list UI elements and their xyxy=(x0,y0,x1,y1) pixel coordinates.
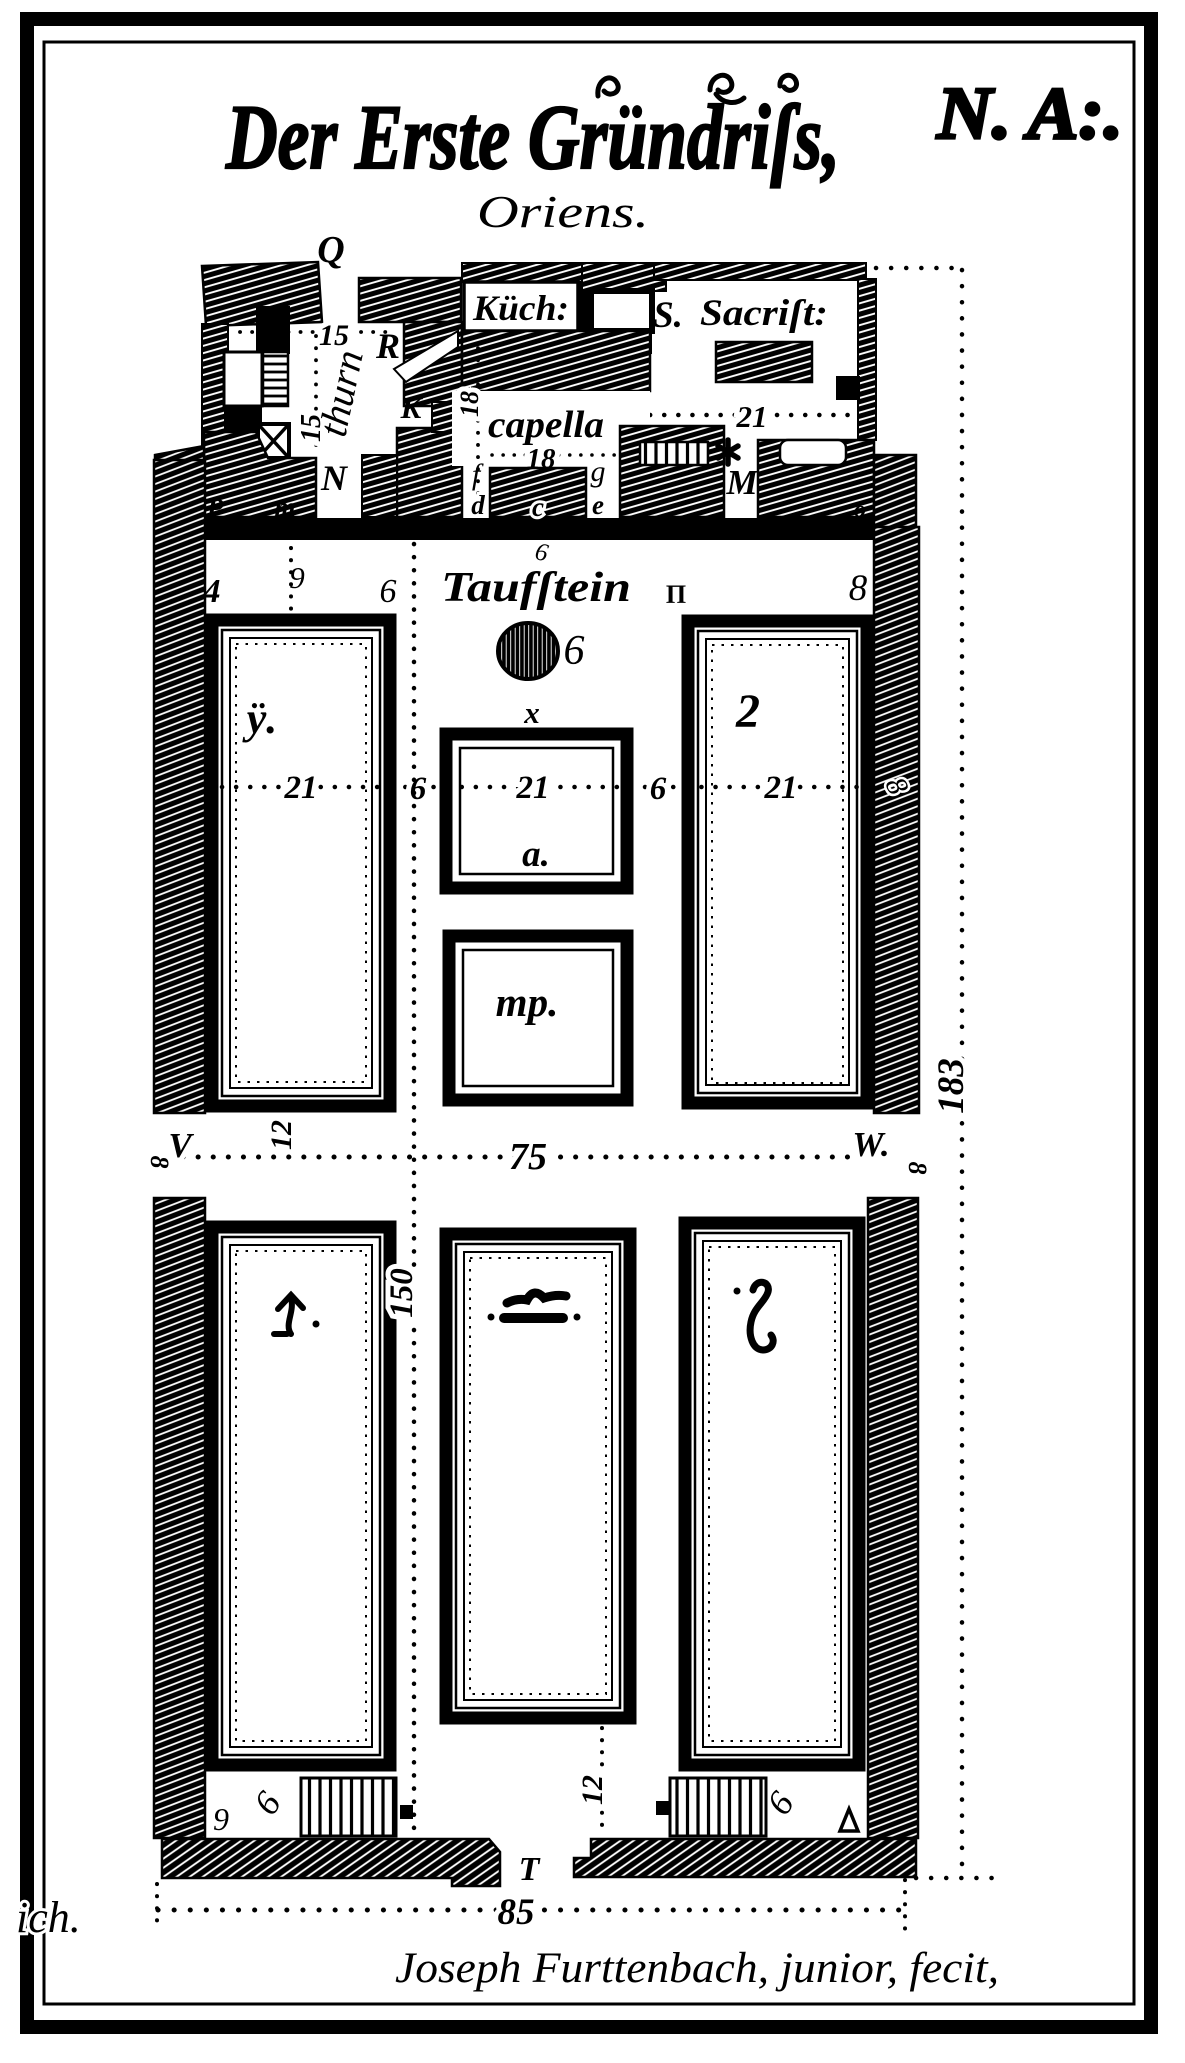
svg-text:21: 21 xyxy=(516,770,550,806)
svg-text:N. A:.: N. A:. xyxy=(936,73,1123,155)
svg-text:9: 9 xyxy=(213,1801,229,1837)
svg-text:75: 75 xyxy=(509,1136,547,1178)
svg-text:4: 4 xyxy=(203,573,221,610)
svg-text:o: o xyxy=(854,497,866,523)
svg-text:R: R xyxy=(375,326,400,366)
svg-text:183: 183 xyxy=(931,1058,972,1114)
svg-text:6: 6 xyxy=(650,771,667,807)
svg-text:g: g xyxy=(591,455,606,488)
svg-text:W.: W. xyxy=(852,1125,889,1164)
svg-text:capella: capella xyxy=(488,404,604,446)
svg-text:Oriens.: Oriens. xyxy=(477,187,649,237)
svg-text:6: 6 xyxy=(380,573,397,610)
svg-text:N: N xyxy=(320,458,349,498)
svg-text:18: 18 xyxy=(455,391,484,417)
svg-text:2: 2 xyxy=(735,685,760,738)
svg-text:e: e xyxy=(592,490,604,520)
svg-text:Küch:: Küch: xyxy=(472,288,569,328)
svg-text:S.: S. xyxy=(653,295,683,336)
svg-text:ich.: ich. xyxy=(16,1893,81,1942)
svg-text:21: 21 xyxy=(736,399,768,434)
svg-text:c: c xyxy=(532,492,544,522)
svg-text:150: 150 xyxy=(384,1268,420,1318)
svg-text:x: x xyxy=(523,695,540,730)
svg-text:6: 6 xyxy=(410,771,427,807)
svg-text:21: 21 xyxy=(284,770,318,806)
svg-text:85: 85 xyxy=(498,1892,535,1933)
svg-text:m: m xyxy=(274,492,295,522)
svg-text:ÿ.: ÿ. xyxy=(242,694,278,743)
svg-text:9: 9 xyxy=(289,560,305,595)
svg-text:6: 6 xyxy=(564,628,585,674)
svg-text:M: M xyxy=(725,463,759,502)
svg-text:P: P xyxy=(206,493,224,523)
svg-text:Π: Π xyxy=(666,580,686,609)
svg-text:Taufſtein: Taufſtein xyxy=(441,565,631,611)
svg-text:Sacriſt:: Sacriſt: xyxy=(700,293,828,334)
svg-text:21: 21 xyxy=(764,770,798,806)
svg-text:Q: Q xyxy=(317,229,344,271)
svg-text:Der Erste Gründriſs,: Der Erste Gründriſs, xyxy=(225,86,840,188)
svg-text:mp.: mp. xyxy=(496,979,559,1025)
svg-text:a.: a. xyxy=(522,834,550,875)
svg-text:8: 8 xyxy=(903,1162,932,1175)
svg-text:Joseph Furttenbach, junior, fe: Joseph Furttenbach, junior, fecit, xyxy=(395,1945,999,1992)
svg-text:d: d xyxy=(471,490,485,520)
svg-text:8: 8 xyxy=(849,568,868,609)
svg-text:8: 8 xyxy=(145,1156,174,1169)
svg-text:K: K xyxy=(400,390,424,425)
svg-text:15: 15 xyxy=(319,319,349,352)
svg-text:12: 12 xyxy=(265,1120,298,1150)
svg-text:12: 12 xyxy=(576,1775,609,1805)
svg-text:T: T xyxy=(519,1851,541,1888)
